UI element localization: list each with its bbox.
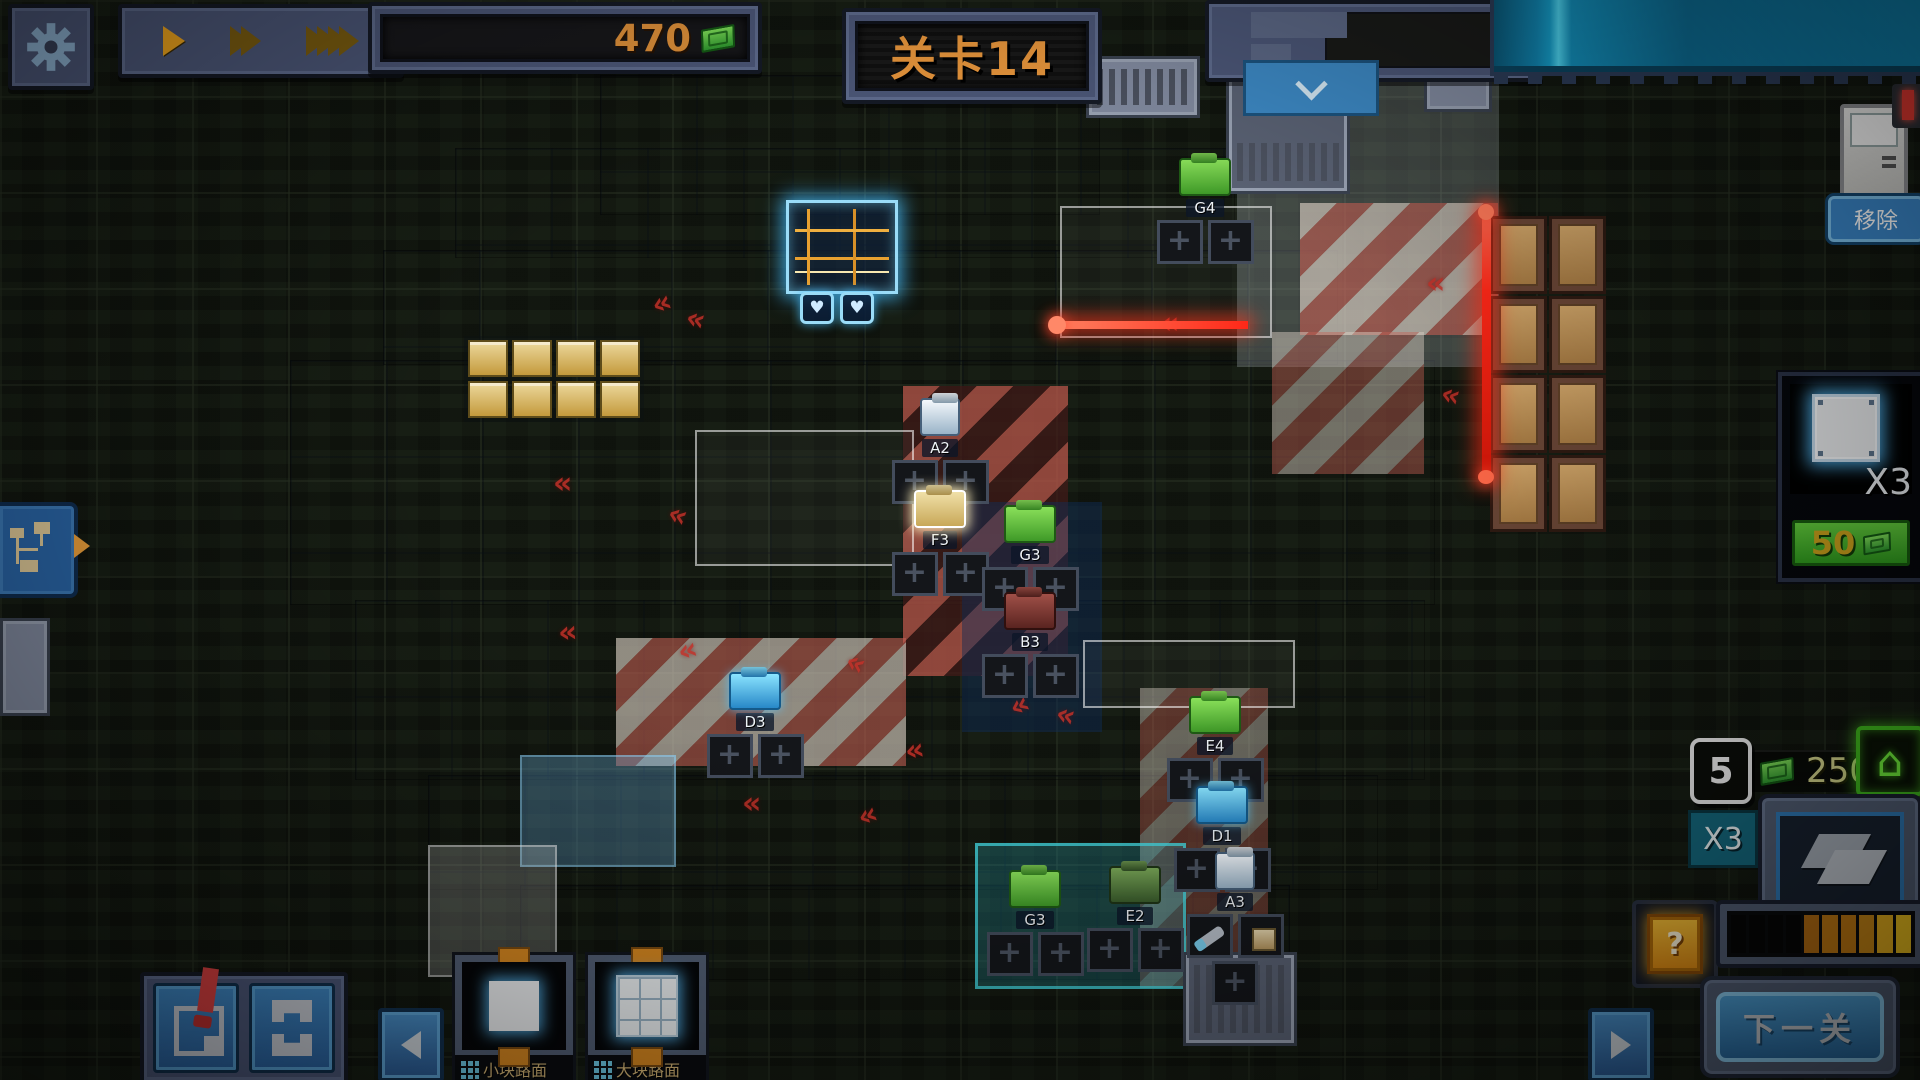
cannon-item-icon xyxy=(1196,925,1225,950)
upgrade-slot[interactable] xyxy=(1238,914,1284,958)
clamp-icon xyxy=(498,1047,530,1067)
home-button[interactable]: ⌂ xyxy=(1856,726,1920,796)
upgrade-slot[interactable] xyxy=(1087,928,1133,972)
house-icon: ⌂ xyxy=(1877,737,1904,786)
arrow-right-icon xyxy=(1611,1031,1631,1059)
tech-tree-icon xyxy=(10,522,50,574)
gear-icon xyxy=(25,21,77,73)
unit-label: E2 xyxy=(1117,907,1152,925)
chip-icon xyxy=(174,1006,224,1056)
level-progress-bar xyxy=(1716,900,1920,968)
unit-label: E4 xyxy=(1197,737,1232,755)
play-speed-1-button[interactable] xyxy=(163,26,185,56)
upgrade-slot[interactable] xyxy=(987,932,1033,976)
selected-item-card[interactable]: X3 50 xyxy=(1778,372,1920,582)
unit-b3[interactable]: B3 xyxy=(975,592,1085,698)
unit-g4[interactable]: G4 xyxy=(1150,158,1260,264)
speed-control-panel xyxy=(118,4,404,78)
level-title-panel: 关卡14 xyxy=(842,8,1102,104)
unit-label: D1 xyxy=(1203,827,1240,845)
item-price-bar: 50 xyxy=(1792,520,1910,566)
level-title: 关卡14 xyxy=(890,23,1054,89)
unit-label: F3 xyxy=(923,531,957,549)
capacitor xyxy=(512,340,552,377)
multiplier-badge: X3 xyxy=(1688,810,1758,868)
money-icon xyxy=(1863,531,1891,555)
unit-a3[interactable]: A3 xyxy=(1180,852,1290,1005)
path-chevron-icon: « xyxy=(553,466,572,501)
unit-sprite xyxy=(1109,866,1161,904)
progress-segment-empty xyxy=(1768,915,1783,953)
toolbar-right-arrow-button[interactable] xyxy=(1588,1008,1654,1080)
heart-icon: ♥ xyxy=(800,292,834,324)
upgrade-slot[interactable] xyxy=(892,552,938,596)
laser-barrier-vertical xyxy=(1482,210,1491,480)
capacitor xyxy=(556,381,596,418)
device-item-icon xyxy=(1252,928,1276,951)
capacitor xyxy=(600,340,640,377)
money-icon xyxy=(1760,756,1794,785)
capacitor xyxy=(468,340,508,377)
chip-question-icon: ? xyxy=(1647,914,1703,974)
unit-sprite xyxy=(1004,505,1056,543)
stack-screen xyxy=(1776,812,1904,904)
large-road-icon xyxy=(616,975,678,1037)
upgrade-slot[interactable] xyxy=(1157,220,1203,264)
unit-sprite xyxy=(1179,158,1231,196)
arrow-left-icon xyxy=(401,1031,421,1059)
progress-segment-filled xyxy=(1804,915,1819,953)
grid-icon xyxy=(459,1059,479,1079)
settings-button[interactable] xyxy=(8,4,94,90)
upgrade-slot[interactable] xyxy=(758,734,804,778)
money-amount: 470 xyxy=(614,17,691,60)
unit-sprite xyxy=(1009,870,1061,908)
core-circuit xyxy=(786,200,898,294)
path-chevron-icon: « xyxy=(1426,266,1445,301)
unit-label: G4 xyxy=(1186,199,1223,217)
remove-tool: 移除 xyxy=(1812,96,1920,246)
crate xyxy=(1549,296,1606,374)
core-health-hearts: ♥♥ xyxy=(800,292,874,324)
unit-g3[interactable]: G3 xyxy=(980,870,1090,976)
progress-segment-filled xyxy=(1896,915,1911,953)
crate xyxy=(1490,455,1547,533)
mystery-chip-button[interactable]: ? xyxy=(1632,900,1718,988)
upgrade-slot[interactable] xyxy=(707,734,753,778)
upgrade-slot[interactable] xyxy=(1138,928,1184,972)
capacitor xyxy=(600,381,640,418)
unit-sprite xyxy=(1215,852,1255,890)
crate xyxy=(1549,455,1606,533)
unit-label: D3 xyxy=(736,713,773,731)
grid-icon xyxy=(592,1059,612,1079)
unit-sprite xyxy=(914,490,966,528)
toolbar-left-arrow-button[interactable] xyxy=(378,1008,444,1080)
factory-structure xyxy=(1086,56,1200,118)
crate-stack xyxy=(1490,216,1606,532)
item-price-value: 50 xyxy=(1811,524,1856,562)
machine-tab xyxy=(1251,12,1347,38)
unit-label: A2 xyxy=(922,439,958,457)
unit-sprite xyxy=(1196,786,1248,824)
assemble-button[interactable] xyxy=(249,983,335,1073)
path-chevron-icon: « xyxy=(742,786,761,821)
upgrade-slot[interactable] xyxy=(1212,961,1258,1005)
capacitor xyxy=(556,340,596,377)
money-panel: 470 xyxy=(368,2,762,74)
remove-button[interactable]: 移除 xyxy=(1828,196,1920,242)
chevron-down-icon xyxy=(1295,67,1328,100)
capacitor xyxy=(468,381,508,418)
item-count-label: X3 xyxy=(1864,462,1912,503)
unit-sprite xyxy=(729,672,781,710)
laser-beam-horizontal xyxy=(1056,321,1248,329)
placement-outline xyxy=(695,430,914,566)
next-level-button[interactable]: 下一关 xyxy=(1700,976,1900,1078)
crate xyxy=(1549,216,1606,294)
progress-segment-empty xyxy=(1731,915,1746,953)
progress-segment-filled xyxy=(1822,915,1837,953)
progress-segment-filled xyxy=(1841,915,1856,953)
unit-sprite xyxy=(920,398,960,436)
unit-e2[interactable]: E2 xyxy=(1080,866,1190,972)
small-road-icon xyxy=(489,981,539,1031)
door-light-icon xyxy=(1892,84,1920,128)
base-core[interactable]: ♥♥ xyxy=(786,200,898,320)
enemy-path-red xyxy=(1300,203,1498,335)
wave-counter: 5 xyxy=(1690,738,1752,804)
upgrade-slot[interactable] xyxy=(1208,220,1254,264)
play-speed-2-button[interactable] xyxy=(239,26,261,56)
unit-label: A3 xyxy=(1217,893,1253,911)
bottom-left-panel xyxy=(140,972,348,1080)
progress-segment-filled xyxy=(1877,915,1892,953)
upgrade-slot[interactable] xyxy=(982,654,1028,698)
unit-label: G3 xyxy=(1011,546,1048,564)
clamp-icon xyxy=(631,1047,663,1067)
money-icon xyxy=(701,23,735,52)
unit-sprite xyxy=(1004,592,1056,630)
unit-label: B3 xyxy=(1012,633,1048,651)
play-speed-4-button[interactable] xyxy=(315,26,359,56)
unit-label: G3 xyxy=(1016,911,1053,929)
upgrade-slot[interactable] xyxy=(1038,932,1084,976)
edge-structure xyxy=(0,618,50,716)
tech-tree-toggle[interactable] xyxy=(0,502,78,598)
capacitor xyxy=(512,381,552,418)
tilecard-small-road[interactable]: 小块路面 xyxy=(452,952,576,1080)
capacitor-grid xyxy=(464,336,644,422)
chip-alert-button[interactable] xyxy=(153,983,239,1073)
next-level-label: 下一关 xyxy=(1716,992,1884,1062)
unit-sprite xyxy=(1189,696,1241,734)
expand-arrow-icon xyxy=(74,534,90,558)
crate xyxy=(1549,375,1606,453)
game-screen: ♥♥ «««««««««««««««« G4A2F3G3B3D3E4D1G3E2… xyxy=(0,0,1920,1080)
enemy-path-red xyxy=(1272,332,1424,474)
crate xyxy=(1490,216,1547,294)
upgrade-slot[interactable] xyxy=(1187,914,1233,958)
path-chevron-icon: « xyxy=(1437,376,1465,415)
upgrade-slot[interactable] xyxy=(1033,654,1079,698)
energy-bar-panel xyxy=(1490,0,1920,76)
connector-icon xyxy=(272,1000,312,1056)
unit-d3[interactable]: D3 xyxy=(700,672,810,778)
crate xyxy=(1490,296,1547,374)
road-tile-icon xyxy=(1812,394,1880,462)
crate xyxy=(1490,375,1547,453)
progress-segment-filled xyxy=(1859,915,1874,953)
heart-icon: ♥ xyxy=(840,292,874,324)
dropdown-button[interactable] xyxy=(1243,60,1379,116)
tilecard-large-road[interactable]: 大块路面 xyxy=(585,952,709,1080)
progress-segment-empty xyxy=(1749,915,1764,953)
path-chevron-icon: « xyxy=(557,614,579,651)
progress-segment-empty xyxy=(1786,915,1801,953)
